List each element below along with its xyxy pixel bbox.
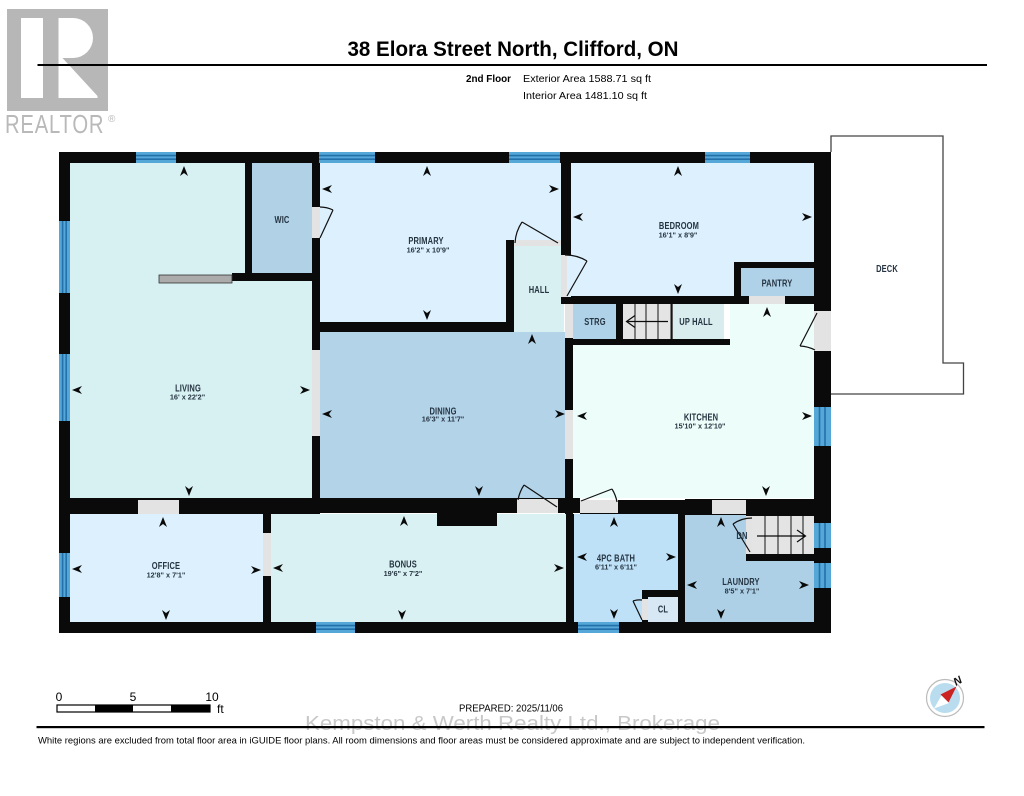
- svg-text:16'2" x 10'9": 16'2" x 10'9": [407, 246, 450, 255]
- svg-text:Exterior Area 1588.71 sq ft: Exterior Area 1588.71 sq ft: [523, 73, 651, 85]
- svg-text:STRG: STRG: [584, 316, 605, 327]
- svg-text:8'5" x 7'1": 8'5" x 7'1": [725, 587, 760, 596]
- svg-text:Interior Area 1481.10 sq ft: Interior Area 1481.10 sq ft: [523, 90, 647, 102]
- svg-text:5: 5: [130, 690, 137, 704]
- svg-text:6'11" x 6'11": 6'11" x 6'11": [595, 563, 637, 572]
- svg-text:15'10" x 12'10": 15'10" x 12'10": [675, 422, 726, 431]
- svg-text:19'6" x 7'2": 19'6" x 7'2": [384, 569, 423, 578]
- svg-text:2nd Floor: 2nd Floor: [466, 73, 511, 85]
- svg-text:Kempston & Werth Realty Ltd.,: Kempston & Werth Realty Ltd., Brokerage: [305, 713, 720, 735]
- svg-text:HALL: HALL: [529, 284, 550, 295]
- svg-text:38 Elora Street North, Cliffor: 38 Elora Street North, Clifford, ON: [348, 37, 679, 61]
- svg-text:White regions are excluded fro: White regions are excluded from total fl…: [38, 736, 805, 746]
- svg-text:UP HALL: UP HALL: [679, 316, 713, 327]
- svg-text:DECK: DECK: [876, 263, 898, 274]
- svg-text:16'1" x 8'9": 16'1" x 8'9": [659, 231, 698, 240]
- svg-text:REALTOR: REALTOR: [5, 110, 104, 139]
- svg-text:16' x 22'2": 16' x 22'2": [170, 393, 205, 402]
- svg-text:WIC: WIC: [274, 214, 289, 225]
- svg-text:16'3" x 11'7": 16'3" x 11'7": [422, 415, 464, 424]
- svg-text:PANTRY: PANTRY: [762, 277, 793, 288]
- svg-text:CL: CL: [658, 603, 669, 614]
- svg-text:0: 0: [56, 690, 63, 704]
- svg-text:ft: ft: [217, 702, 224, 716]
- svg-text:12'8" x 7'1": 12'8" x 7'1": [147, 571, 186, 580]
- svg-text:®: ®: [108, 114, 116, 125]
- svg-text:DN: DN: [736, 530, 747, 541]
